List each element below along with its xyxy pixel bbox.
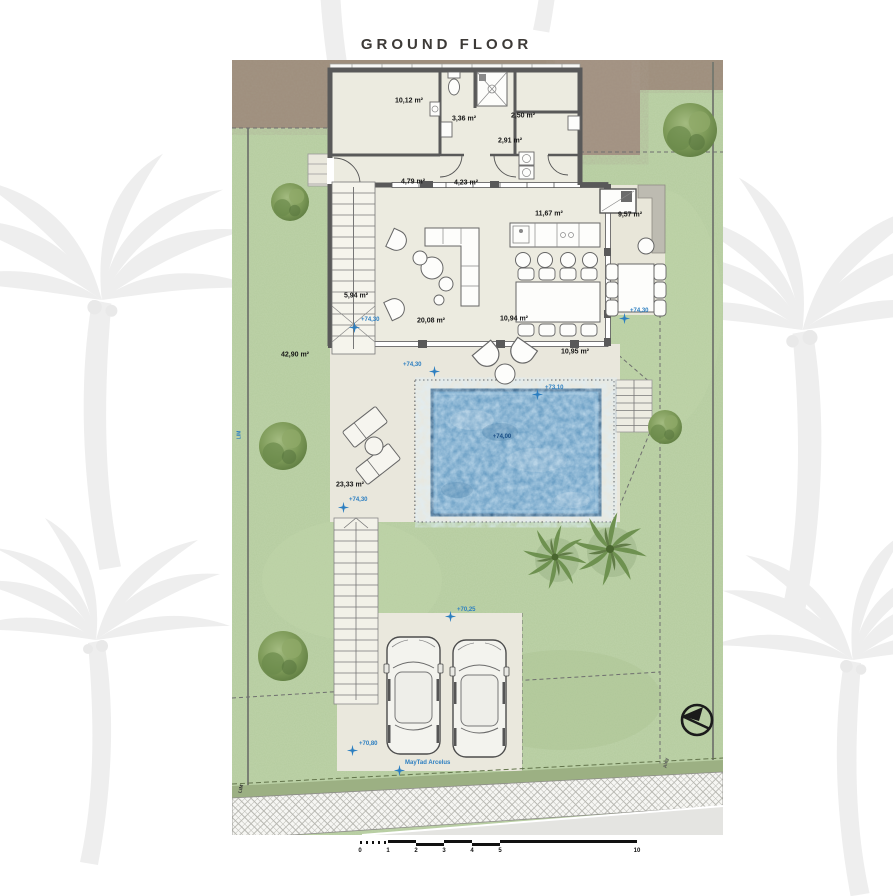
scale-tick: 1: [386, 848, 389, 854]
boundary-label-left: LIM: [236, 431, 242, 440]
survey-star-icon: [532, 389, 543, 400]
room-label-bbq-terrace: 9,57 m²: [618, 212, 642, 219]
car: [384, 637, 443, 754]
swimming-pool: [432, 390, 600, 515]
room-label-storage: 2,50 m²: [511, 113, 535, 120]
scale-bar-segment: [416, 843, 444, 846]
scale-bar-segment: [500, 840, 637, 843]
survey-star-icon: [429, 366, 440, 377]
scale-tick: 3: [442, 848, 445, 854]
room-label-porch: 10,95 m²: [561, 349, 589, 356]
scale-tick: 0: [358, 848, 361, 854]
site-plan-drawing: [232, 60, 723, 835]
survey-star-icon: [619, 313, 630, 324]
room-label-laundry: 2,91 m²: [498, 138, 522, 145]
scale-bar: 0 1 2 3 4 5 10: [358, 838, 640, 858]
scale-tick: 10: [634, 848, 641, 854]
room-label-hallway: 4,79 m²: [401, 179, 425, 186]
survey-star-icon: [338, 502, 349, 513]
pool-elevation-label: +74,00: [493, 434, 512, 440]
survey-star-icon: [394, 765, 405, 776]
scale-tick: 4: [470, 848, 473, 854]
scale-bar-dotted-segment: [360, 841, 388, 844]
site-plan: 10,12 m² 3,36 m² 2,50 m² 2,91 m² 4,79 m²…: [232, 60, 723, 835]
survey-star-icon: [347, 745, 358, 756]
room-label-living: 20,08 m²: [417, 318, 445, 325]
scale-bar-segment: [472, 843, 500, 846]
scale-bar-segment: [444, 840, 472, 843]
survey-star-icon: [445, 611, 456, 622]
room-label-staircase: 5,94 m²: [344, 293, 368, 300]
room-label-entry: 4,23 m²: [454, 180, 478, 187]
survey-star-icon: [349, 322, 360, 333]
page-title: GROUND FLOOR: [0, 36, 893, 53]
scale-bar-segment: [388, 840, 416, 843]
room-label-dining: 10,94 m²: [500, 316, 528, 323]
scale-tick: 5: [498, 848, 501, 854]
room-label-pool-deck: 23,33 m²: [336, 482, 364, 489]
room-label-kitchen: 11,67 m²: [535, 211, 563, 218]
room-label-side-garden: 42,90 m²: [281, 352, 309, 359]
room-label-bathroom: 3,36 m²: [452, 116, 476, 123]
room-label-bedroom: 10,12 m²: [395, 98, 423, 105]
car: [450, 640, 509, 757]
scale-tick: 2: [414, 848, 417, 854]
